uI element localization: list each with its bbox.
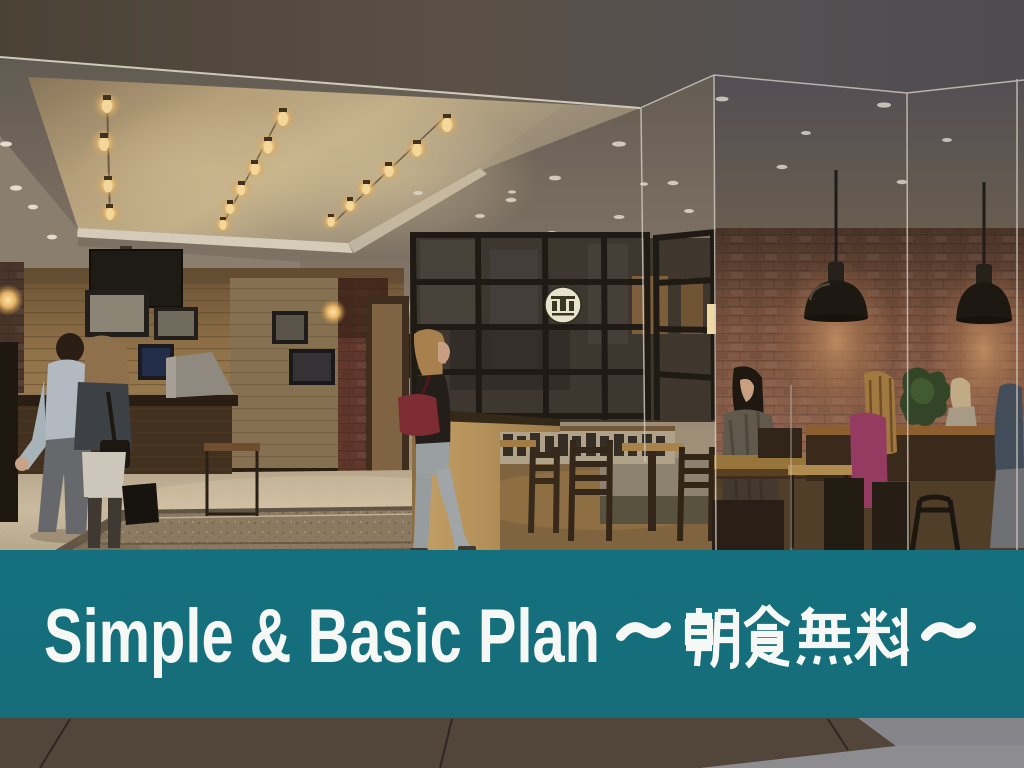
svg-text:Simple & Basic Plan: Simple & Basic Plan [44, 594, 600, 679]
